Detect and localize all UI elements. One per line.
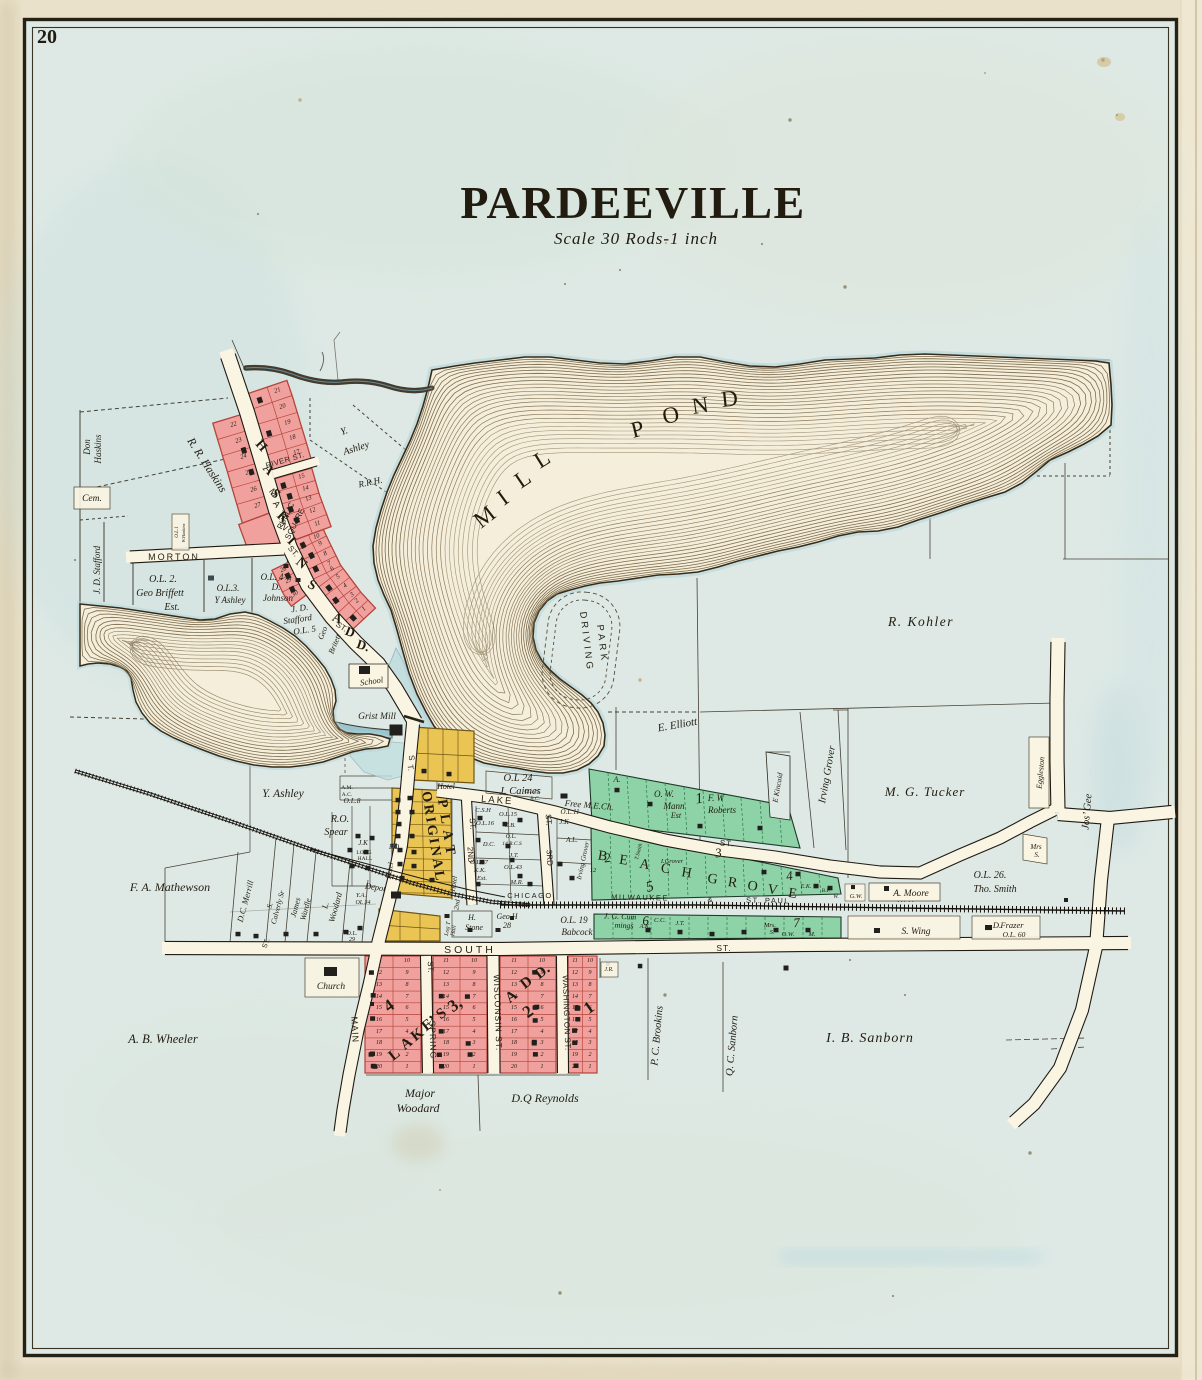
svg-text:ST.: ST. [544, 814, 554, 826]
svg-text:6: 6 [473, 1005, 476, 1011]
svg-text:16: 16 [511, 1017, 517, 1023]
svg-text:PARDEEVILLE: PARDEEVILLE [460, 177, 805, 228]
svg-text:19: 19 [443, 1052, 449, 1058]
svg-text:W.Haskins: W.Haskins [181, 523, 186, 542]
svg-text:8: 8 [589, 982, 592, 988]
svg-text:14: 14 [572, 993, 578, 1000]
svg-text:Don: Don [82, 439, 92, 456]
svg-text:D.Q Reynolds: D.Q Reynolds [510, 1091, 579, 1105]
svg-text:Est.: Est. [163, 602, 179, 613]
svg-text:12: 12 [511, 970, 517, 976]
svg-text:Church: Church [317, 982, 345, 992]
svg-text:O.L.3.: O.L.3. [217, 583, 240, 593]
svg-text:6: 6 [541, 1005, 544, 1011]
svg-text:CHICAGO: CHICAGO [507, 891, 553, 900]
svg-text:2nd: 2nd [452, 898, 461, 910]
svg-text:8: 8 [406, 982, 409, 988]
svg-text:M. G. Tucker: M. G. Tucker [884, 784, 966, 799]
svg-text:28: 28 [503, 921, 511, 930]
svg-text:P.O.: P.O. [388, 843, 401, 851]
svg-text:mings: mings [614, 921, 633, 931]
svg-text:15: 15 [376, 1005, 382, 1011]
svg-text:Mrs: Mrs [1029, 843, 1042, 851]
svg-text:J.R.: J.R. [604, 967, 613, 973]
svg-text:13: 13 [443, 982, 449, 988]
svg-text:11: 11 [511, 958, 517, 964]
svg-text:6: 6 [406, 1005, 409, 1011]
svg-text:10: 10 [587, 958, 593, 964]
svg-text:J.T.: J.T. [675, 920, 685, 927]
svg-text:2: 2 [589, 1052, 592, 1058]
svg-text:3: 3 [588, 1040, 592, 1046]
svg-text:O.W.: O.W. [782, 931, 795, 938]
svg-text:M.: M. [807, 931, 815, 938]
svg-text:17: 17 [443, 1029, 450, 1035]
svg-text:Mann: Mann [663, 801, 685, 811]
svg-text:18: 18 [511, 1040, 517, 1046]
svg-text:13: 13 [572, 982, 578, 988]
svg-text:J. D. Stafford: J. D. Stafford [92, 545, 102, 594]
svg-text:9: 9 [589, 970, 592, 976]
svg-text:11: 11 [572, 958, 578, 964]
svg-text:O.L.17: O.L.17 [470, 859, 489, 866]
svg-text:S: S [407, 755, 417, 761]
svg-text:R.O.: R.O. [330, 814, 349, 825]
svg-text:O.L.25: O.L.25 [524, 789, 540, 795]
svg-text:Est.: Est. [476, 875, 487, 882]
svg-text:O.L. 26.: O.L. 26. [974, 870, 1007, 881]
svg-text:18: 18 [376, 1040, 382, 1046]
svg-text:MAIN: MAIN [349, 1016, 360, 1043]
svg-text:S.: S. [770, 929, 775, 936]
svg-text:29: 29 [349, 937, 355, 943]
svg-text:I.Grover: I.Grover [660, 858, 684, 865]
svg-text:H.: H. [467, 913, 476, 922]
svg-text:&: & [707, 895, 712, 904]
svg-text:12: 12 [590, 867, 597, 874]
svg-text:17: 17 [376, 1029, 383, 1035]
svg-text:D.: D. [992, 920, 1001, 930]
svg-text:19: 19 [572, 1052, 578, 1058]
svg-text:Major: Major [404, 1086, 435, 1100]
svg-text:Tho. Smith: Tho. Smith [973, 884, 1016, 895]
svg-text:G.W.: G.W. [850, 893, 863, 900]
svg-text:C.C.: C.C. [654, 917, 666, 924]
svg-text:C.S.H: C.S.H [475, 807, 491, 814]
svg-text:J.T.: J.T. [509, 852, 519, 859]
svg-text:Spear: Spear [324, 827, 347, 838]
svg-text:4: 4 [473, 1028, 476, 1035]
svg-text:I. B. Sanborn: I. B. Sanborn [825, 1031, 914, 1046]
svg-text:3RD: 3RD [544, 850, 554, 867]
svg-text:Y Ashley: Y Ashley [214, 595, 245, 605]
svg-text:9: 9 [406, 970, 409, 976]
svg-text:8: 8 [473, 982, 476, 988]
svg-text:1: 1 [473, 1064, 476, 1070]
svg-text:2: 2 [473, 1052, 476, 1058]
svg-text:Haskins: Haskins [93, 434, 103, 464]
svg-text:Mrs.: Mrs. [763, 922, 776, 929]
svg-text:O.L.11: O.L.11 [561, 808, 580, 816]
svg-text:J.K: J.K [559, 818, 569, 826]
svg-text:OL 34: OL 34 [355, 899, 370, 906]
svg-text:5: 5 [473, 1017, 476, 1023]
svg-text:Frazer: Frazer [999, 920, 1024, 930]
svg-text:Johnson: Johnson [263, 593, 293, 603]
svg-text:O.L.1: O.L.1 [175, 526, 180, 537]
svg-text:Woodard: Woodard [396, 1101, 440, 1115]
svg-text:Geo Briffett: Geo Briffett [136, 588, 184, 599]
svg-text:11: 11 [443, 958, 449, 964]
svg-text:O.L.43: O.L.43 [504, 864, 523, 871]
svg-text:MORTON: MORTON [148, 552, 200, 562]
svg-text:A.K.: A.K. [639, 924, 651, 930]
svg-text:1: 1 [589, 1064, 592, 1070]
svg-text:14 R.C.S: 14 R.C.S [502, 840, 522, 847]
svg-text:D.: D. [271, 582, 281, 592]
svg-text:O.L.: O.L. [506, 834, 517, 840]
svg-text:J.K: J.K [358, 839, 368, 847]
svg-text:5: 5 [406, 1017, 409, 1023]
svg-text:M.R.: M.R. [510, 879, 524, 886]
svg-text:Babcock: Babcock [562, 927, 594, 937]
svg-text:B.F.: B.F. [822, 888, 831, 894]
svg-text:4: 4 [589, 1028, 592, 1035]
svg-text:19: 19 [376, 1052, 382, 1058]
svg-text:ST.: ST. [716, 943, 731, 953]
svg-text:4: 4 [541, 1028, 544, 1035]
svg-text:E.K.: E.K. [800, 884, 812, 890]
svg-text:12: 12 [443, 970, 449, 976]
svg-text:A.M.: A.M. [341, 785, 353, 791]
svg-text:R. Kohler: R. Kohler [887, 614, 954, 629]
svg-text:O.L.15: O.L.15 [499, 811, 518, 818]
svg-text:9: 9 [473, 970, 476, 976]
svg-text:5: 5 [541, 1017, 544, 1023]
svg-text:Y. Ashley: Y. Ashley [262, 788, 304, 800]
svg-text:Geo H: Geo H [496, 912, 518, 921]
svg-text:17: 17 [511, 1029, 518, 1035]
svg-text:18: 18 [443, 1040, 449, 1046]
svg-text:O.L. 19: O.L. 19 [560, 915, 588, 925]
svg-text:Est: Est [670, 811, 682, 820]
svg-text:A.: A. [613, 775, 621, 784]
svg-text:O.L. 4: O.L. 4 [261, 572, 284, 582]
svg-text:Hotel: Hotel [436, 782, 456, 791]
svg-text:10: 10 [471, 958, 477, 964]
svg-text:Roberts: Roberts [707, 805, 736, 815]
svg-text:19: 19 [511, 1052, 517, 1058]
svg-text:20: 20 [37, 26, 57, 48]
svg-text:16: 16 [376, 1017, 382, 1023]
svg-text:O. W.: O. W. [654, 789, 674, 799]
svg-text:SOUTH: SOUTH [444, 944, 496, 956]
svg-text:3: 3 [540, 1040, 544, 1046]
svg-text:S. Wing: S. Wing [901, 927, 930, 937]
svg-text:K.K.: K.K. [473, 867, 486, 874]
svg-text:Y.A.: Y.A. [356, 892, 367, 899]
svg-text:A. B. Wheeler: A. B. Wheeler [127, 1032, 198, 1046]
svg-text:Scale 30 Rods-1 inch: Scale 30 Rods-1 inch [554, 229, 718, 248]
svg-text:MILWAUKEE: MILWAUKEE [611, 892, 669, 902]
svg-text:1: 1 [406, 1064, 409, 1070]
svg-text:F. A. Mathewson: F. A. Mathewson [129, 880, 210, 894]
svg-text:2: 2 [541, 1052, 544, 1058]
svg-text:HALL: HALL [358, 856, 373, 862]
svg-text:S.: S. [1034, 851, 1040, 859]
svg-text:O.L.16: O.L.16 [476, 820, 495, 827]
svg-text:1: 1 [541, 1064, 544, 1070]
svg-text:13: 13 [511, 982, 517, 988]
svg-text:W.: W. [833, 894, 838, 900]
svg-text:B.C.: B.C. [530, 796, 540, 802]
svg-text:10: 10 [404, 958, 410, 964]
svg-text:A.C.: A.C. [342, 792, 353, 798]
svg-text:C.B.: C.B. [504, 822, 516, 829]
svg-text:A. Moore: A. Moore [892, 889, 929, 899]
svg-text:T.: T. [406, 764, 416, 771]
svg-text:D.C.: D.C. [482, 841, 496, 848]
svg-text:F. W: F. W [707, 793, 726, 803]
svg-text:O.L. 60: O.L. 60 [1003, 930, 1026, 939]
svg-text:ST.: ST. [426, 961, 435, 973]
svg-text:12: 12 [572, 970, 578, 976]
svg-text:13: 13 [376, 982, 382, 988]
svg-text:D: D [720, 385, 739, 412]
svg-text:ST.: ST. [720, 839, 735, 849]
svg-text:O.L. 2.: O.L. 2. [149, 574, 177, 585]
svg-text:Stone: Stone [465, 923, 483, 932]
svg-text:O.L 24: O.L 24 [504, 773, 534, 784]
svg-text:A.L.: A.L. [565, 836, 578, 844]
svg-text:3: 3 [472, 1040, 476, 1046]
svg-text:20: 20 [511, 1064, 517, 1070]
svg-text:Grist Mill: Grist Mill [358, 712, 396, 722]
svg-text:Cem.: Cem. [82, 494, 102, 504]
